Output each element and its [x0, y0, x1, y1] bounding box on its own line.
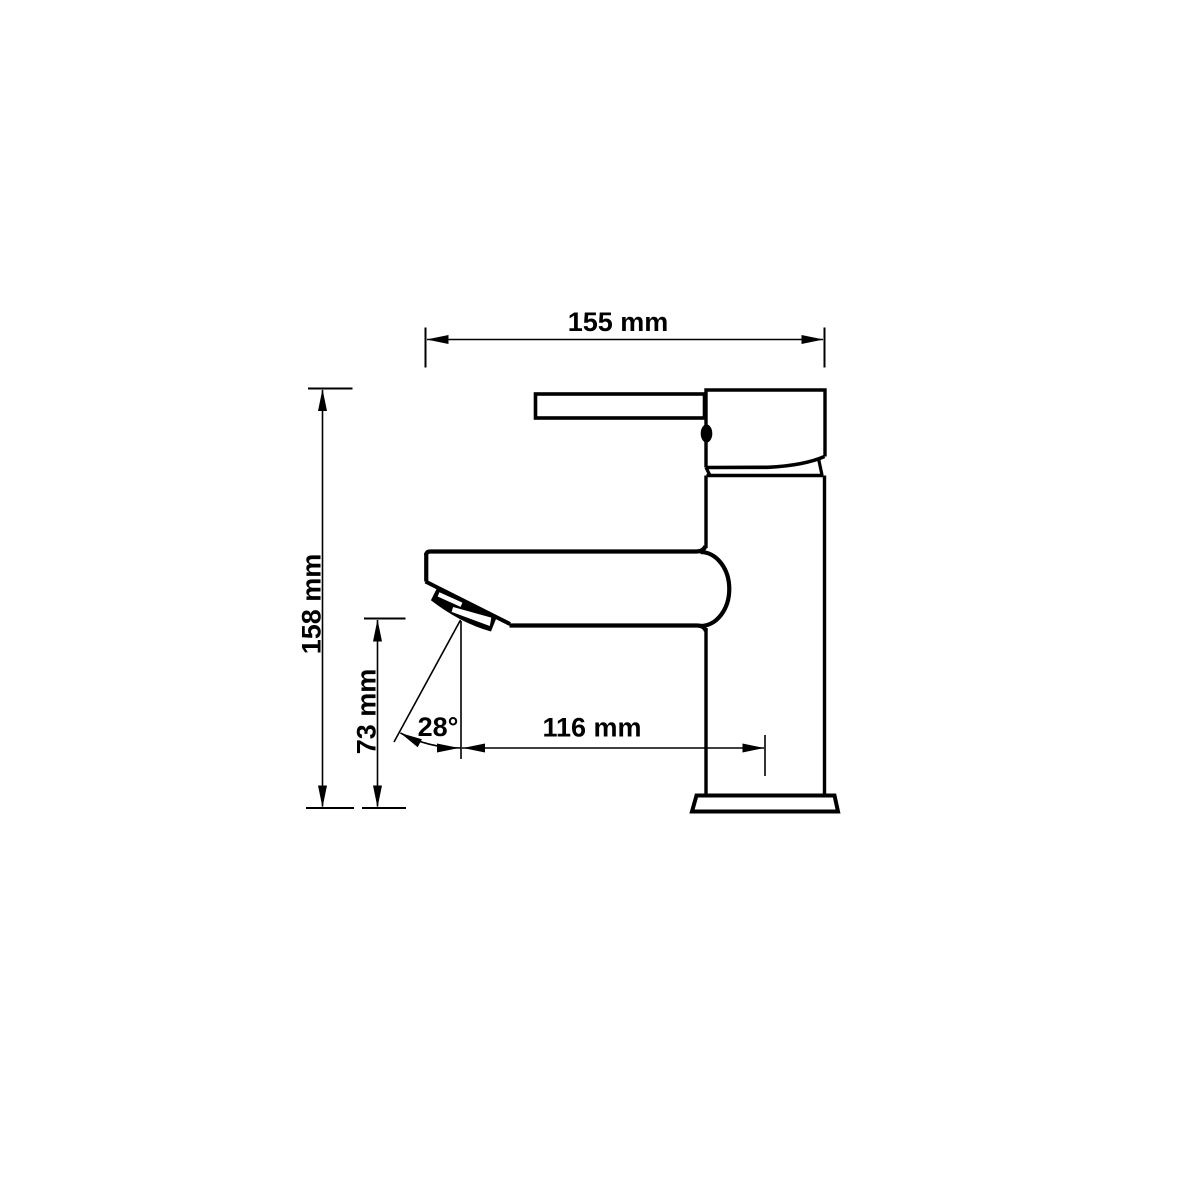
svg-text:116 mm: 116 mm	[542, 713, 641, 743]
svg-text:28°: 28°	[418, 712, 459, 742]
svg-text:155 mm: 155 mm	[568, 307, 669, 337]
